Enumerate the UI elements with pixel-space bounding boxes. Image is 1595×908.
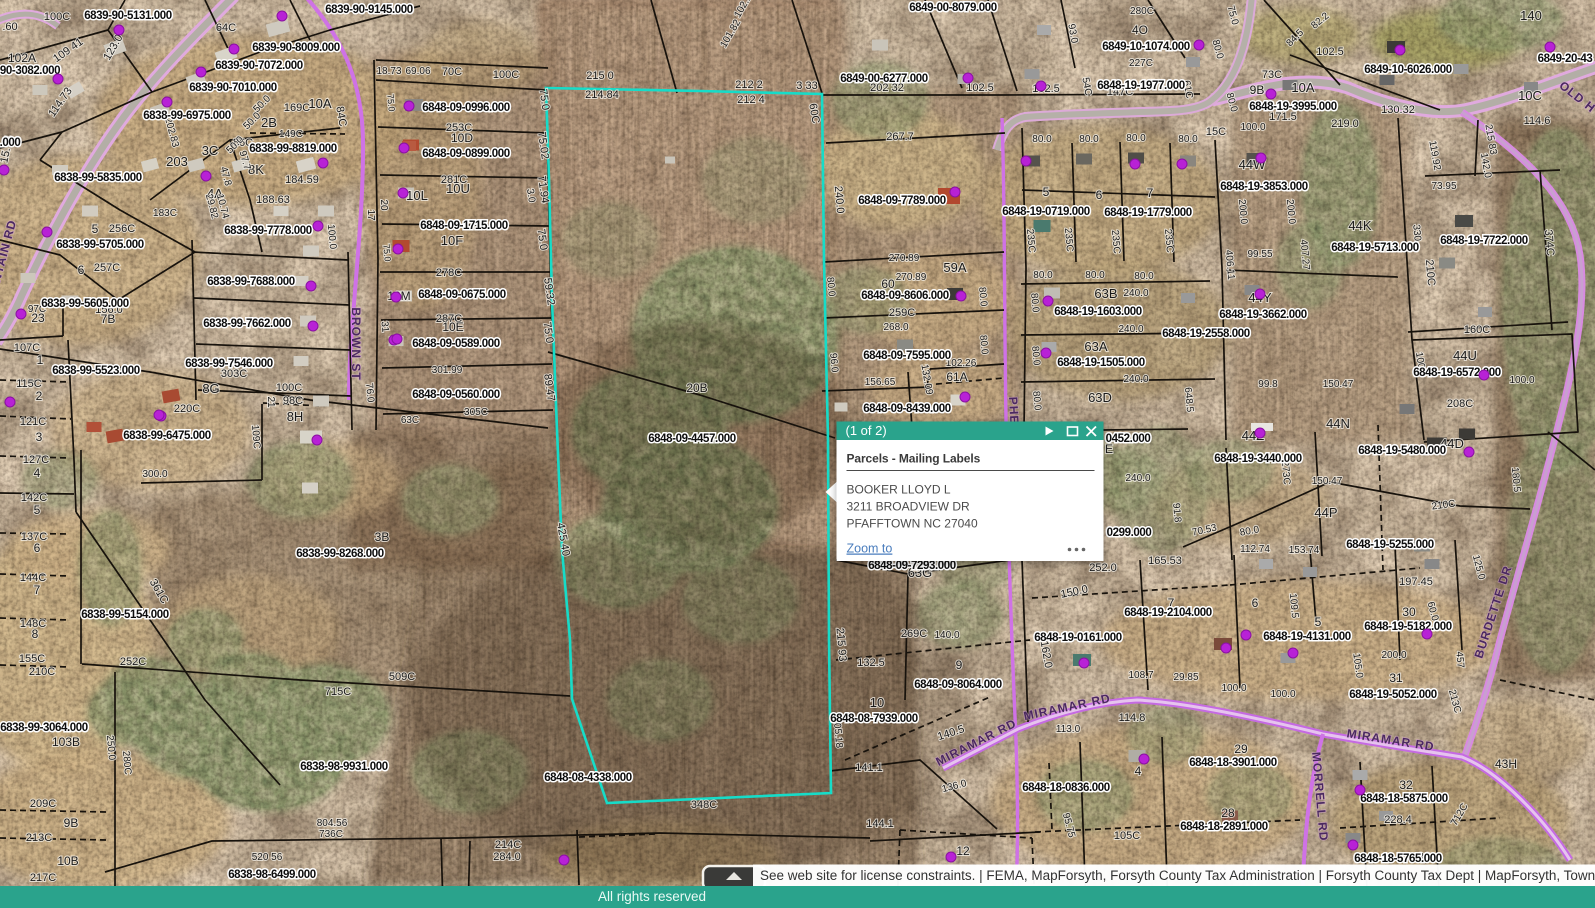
svg-text:214C: 214C xyxy=(495,839,521,851)
svg-text:6839-90-8009.000: 6839-90-8009.000 xyxy=(252,42,340,54)
svg-text:.60: .60 xyxy=(2,21,17,33)
svg-text:330: 330 xyxy=(1410,224,1422,242)
svg-text:73.95: 73.95 xyxy=(1431,181,1456,192)
svg-text:6849-20-43: 6849-20-43 xyxy=(1538,53,1593,65)
svg-text:Parcels - Mailing Labels: Parcels - Mailing Labels xyxy=(847,452,981,466)
svg-text:3 33: 3 33 xyxy=(796,80,817,92)
svg-text:3211 BROADVIEW DR: 3211 BROADVIEW DR xyxy=(847,500,970,514)
svg-text:6849-10-6026.000: 6849-10-6026.000 xyxy=(1364,64,1452,76)
svg-text:32: 32 xyxy=(1399,778,1413,792)
svg-text:0452.000: 0452.000 xyxy=(1106,433,1151,445)
svg-text:44U: 44U xyxy=(1453,348,1477,363)
svg-text:144.1: 144.1 xyxy=(866,818,894,830)
svg-text:212 4: 212 4 xyxy=(737,94,765,106)
svg-text:6848-19-2558.000: 6848-19-2558.000 xyxy=(1162,328,1250,340)
svg-text:18.73: 18.73 xyxy=(376,66,401,77)
svg-text:2: 2 xyxy=(36,389,43,403)
svg-text:121C: 121C xyxy=(20,416,46,428)
svg-text:10L: 10L xyxy=(406,188,428,203)
svg-text:240.0: 240.0 xyxy=(1123,288,1148,299)
svg-text:10A: 10A xyxy=(1291,80,1314,95)
svg-text:12: 12 xyxy=(956,844,970,858)
svg-text:278C: 278C xyxy=(436,267,462,279)
svg-text:257C: 257C xyxy=(94,262,120,274)
svg-text:80.0: 80.0 xyxy=(1033,270,1053,281)
svg-text:8: 8 xyxy=(32,627,39,641)
svg-text:200.0: 200.0 xyxy=(1284,199,1297,225)
svg-text:6849-10-1074.000: 6849-10-1074.000 xyxy=(1102,41,1190,53)
svg-text:6849-00-8079.000: 6849-00-8079.000 xyxy=(909,2,997,14)
svg-text:240.0: 240.0 xyxy=(1125,473,1150,484)
svg-text:80.0: 80.0 xyxy=(1032,134,1052,145)
svg-text:301.99: 301.99 xyxy=(432,365,463,376)
svg-text:140: 140 xyxy=(1520,8,1542,23)
svg-text:80.0: 80.0 xyxy=(824,277,837,298)
svg-text:235C: 235C xyxy=(1062,227,1075,252)
svg-text:210C: 210C xyxy=(1423,259,1437,286)
svg-text:200.0: 200.0 xyxy=(1236,199,1249,225)
svg-text:PFAFFTOWN NC 27040: PFAFFTOWN NC 27040 xyxy=(847,517,978,531)
svg-text:6848-19-7722.000: 6848-19-7722.000 xyxy=(1440,235,1528,247)
svg-text:6: 6 xyxy=(78,263,85,277)
svg-text:253C: 253C xyxy=(446,122,472,134)
svg-text:80.0: 80.0 xyxy=(1079,134,1099,145)
svg-text:6848-19-5182.000: 6848-19-5182.000 xyxy=(1364,621,1452,633)
svg-text:15C: 15C xyxy=(1206,126,1226,138)
svg-text:80.0: 80.0 xyxy=(1085,270,1105,281)
svg-text:715C: 715C xyxy=(325,686,351,698)
svg-text:6838-99-5835.000: 6838-99-5835.000 xyxy=(54,172,142,184)
svg-text:100C: 100C xyxy=(493,69,519,81)
svg-text:197.45: 197.45 xyxy=(1399,576,1433,588)
svg-text:2B: 2B xyxy=(261,115,277,130)
svg-text:6838-99-8268.000: 6838-99-8268.000 xyxy=(296,548,384,560)
svg-text:6848-09-0996.000: 6848-09-0996.000 xyxy=(422,102,510,114)
svg-text:75.0: 75.0 xyxy=(381,244,392,262)
svg-text:219.0: 219.0 xyxy=(1331,118,1359,130)
svg-text:6838-99-7688.000: 6838-99-7688.000 xyxy=(207,276,295,288)
svg-text:220C: 220C xyxy=(174,403,200,415)
svg-text:28: 28 xyxy=(1221,806,1235,820)
svg-text:6838-98-9931.000: 6838-98-9931.000 xyxy=(300,761,388,773)
svg-text:5: 5 xyxy=(1315,615,1322,629)
svg-text:4: 4 xyxy=(34,466,41,480)
svg-text:210C: 210C xyxy=(29,666,55,678)
svg-text:6838-99-6475.000: 6838-99-6475.000 xyxy=(123,430,211,442)
svg-text:6848-19-4131.000: 6848-19-4131.000 xyxy=(1263,631,1351,643)
svg-text:6838-98-6499.000: 6838-98-6499.000 xyxy=(228,869,316,881)
svg-text:100C: 100C xyxy=(276,382,302,394)
svg-text:348C: 348C xyxy=(691,799,717,811)
svg-text:80.0: 80.0 xyxy=(1134,271,1154,282)
svg-text:6848-09-8439.000: 6848-09-8439.000 xyxy=(863,403,951,415)
svg-text:203: 203 xyxy=(166,154,188,169)
svg-text:6848-18-5875.000: 6848-18-5875.000 xyxy=(1360,793,1448,805)
svg-text:7: 7 xyxy=(34,583,41,597)
svg-text:63B: 63B xyxy=(1094,286,1117,301)
svg-text:98C: 98C xyxy=(283,395,303,407)
svg-text:6839-90-9145.000: 6839-90-9145.000 xyxy=(325,4,413,16)
svg-text:10E: 10E xyxy=(442,320,463,334)
svg-text:269C: 269C xyxy=(901,628,927,640)
svg-text:6848-19-5052.000: 6848-19-5052.000 xyxy=(1349,689,1437,701)
svg-text:BROWN ST: BROWN ST xyxy=(349,307,363,380)
svg-text:169C: 169C xyxy=(284,102,310,114)
svg-text:6848-19-1603.000: 6848-19-1603.000 xyxy=(1054,306,1142,318)
svg-text:3C: 3C xyxy=(202,143,219,158)
svg-text:59A: 59A xyxy=(943,260,966,275)
svg-text:20: 20 xyxy=(378,199,389,211)
svg-text:76.0: 76.0 xyxy=(363,383,376,404)
svg-text:10: 10 xyxy=(870,695,884,710)
svg-text:44K: 44K xyxy=(1348,218,1371,233)
svg-text:156.65: 156.65 xyxy=(865,377,896,388)
svg-text:6: 6 xyxy=(1096,188,1103,202)
svg-text:63C: 63C xyxy=(401,415,419,426)
svg-text:102.5: 102.5 xyxy=(1316,46,1344,58)
svg-text:60: 60 xyxy=(881,277,895,291)
svg-text:6848-09-7293.000: 6848-09-7293.000 xyxy=(868,560,956,572)
svg-text:100.0: 100.0 xyxy=(325,224,338,250)
svg-text:4O: 4O xyxy=(1132,23,1148,37)
svg-text:6848-09-7789.000: 6848-09-7789.000 xyxy=(858,195,946,207)
svg-text:305C: 305C xyxy=(464,407,488,418)
svg-text:457: 457 xyxy=(1453,651,1465,669)
svg-text:6848-19-3853.000: 6848-19-3853.000 xyxy=(1220,181,1308,193)
svg-text:6848-19-5480.000: 6848-19-5480.000 xyxy=(1358,445,1446,457)
svg-text:75.0: 75.0 xyxy=(385,94,396,112)
svg-text:6848-19-0719.000: 6848-19-0719.000 xyxy=(1002,206,1090,218)
svg-text:108.7: 108.7 xyxy=(1128,670,1153,681)
svg-text:268.0: 268.0 xyxy=(883,322,908,333)
svg-text:44P: 44P xyxy=(1314,505,1337,520)
svg-text:100.0: 100.0 xyxy=(1221,683,1246,694)
svg-text:100.0: 100.0 xyxy=(1240,122,1265,133)
svg-text:300.0: 300.0 xyxy=(142,469,167,480)
svg-text:235C: 235C xyxy=(1109,229,1122,254)
svg-text:91.8: 91.8 xyxy=(1170,503,1183,524)
svg-text:Zoom to: Zoom to xyxy=(847,542,893,556)
svg-text:80.0: 80.0 xyxy=(1029,346,1042,367)
svg-text:6838-99-7778.000: 6838-99-7778.000 xyxy=(224,225,312,237)
svg-text:6838-99-8819.000: 6838-99-8819.000 xyxy=(249,143,337,155)
svg-text:10B: 10B xyxy=(57,854,78,868)
svg-text:99.8: 99.8 xyxy=(1258,379,1278,390)
svg-text:9B: 9B xyxy=(1250,83,1265,97)
svg-text:235C: 235C xyxy=(1024,228,1037,253)
svg-text:109C: 109C xyxy=(249,424,262,449)
svg-text:4: 4 xyxy=(1135,764,1142,778)
svg-text:6839-90-7072.000: 6839-90-7072.000 xyxy=(215,60,303,72)
svg-text:6838-99-5705.000: 6838-99-5705.000 xyxy=(56,239,144,251)
svg-text:.000: .000 xyxy=(0,137,20,149)
svg-text:132.5: 132.5 xyxy=(857,657,885,669)
svg-text:6838-99-7546.000: 6838-99-7546.000 xyxy=(185,358,273,370)
svg-text:21: 21 xyxy=(265,396,276,408)
svg-text:149C: 149C xyxy=(279,129,303,140)
svg-text:217C: 217C xyxy=(30,872,56,884)
svg-text:280C: 280C xyxy=(1130,6,1154,17)
svg-text:17: 17 xyxy=(365,209,376,221)
svg-text:284.0: 284.0 xyxy=(493,851,521,863)
svg-text:80.0: 80.0 xyxy=(1178,134,1198,145)
svg-text:80.0: 80.0 xyxy=(977,335,990,356)
svg-text:184.59: 184.59 xyxy=(285,174,319,186)
svg-text:9B: 9B xyxy=(64,816,79,830)
svg-text:180.5: 180.5 xyxy=(1509,467,1522,493)
svg-text:10C: 10C xyxy=(1518,88,1542,103)
svg-text:6848-18-3901.000: 6848-18-3901.000 xyxy=(1189,757,1277,769)
svg-text:6848-09-8064.000: 6848-09-8064.000 xyxy=(914,679,1002,691)
svg-text:6: 6 xyxy=(1252,596,1259,610)
svg-text:6848-19-5713.000: 6848-19-5713.000 xyxy=(1331,242,1419,254)
svg-text:228.4: 228.4 xyxy=(1384,814,1412,826)
svg-text:188.63: 188.63 xyxy=(256,194,290,206)
svg-text:213C: 213C xyxy=(26,832,52,844)
svg-text:6848-19-2104.000: 6848-19-2104.000 xyxy=(1124,607,1212,619)
svg-text:214.84: 214.84 xyxy=(585,89,619,101)
svg-text:240.0: 240.0 xyxy=(832,186,846,214)
svg-text:102.5: 102.5 xyxy=(966,82,994,94)
svg-text:80.0: 80.0 xyxy=(1126,133,1146,144)
svg-text:6: 6 xyxy=(34,541,41,555)
svg-text:BOOKER LLOYD L: BOOKER LLOYD L xyxy=(847,483,951,497)
svg-text:648.5: 648.5 xyxy=(1182,387,1195,413)
svg-text:6848-19-3440.000: 6848-19-3440.000 xyxy=(1214,453,1302,465)
svg-text:252.0: 252.0 xyxy=(1089,562,1117,574)
svg-text:235C: 235C xyxy=(1162,228,1175,253)
svg-text:250.0: 250.0 xyxy=(104,735,117,761)
svg-text:9: 9 xyxy=(956,658,963,672)
svg-text:43H: 43H xyxy=(1495,757,1517,771)
svg-text:99.55: 99.55 xyxy=(1247,249,1272,260)
svg-text:209C: 209C xyxy=(30,798,56,810)
svg-text:6848-09-4457.000: 6848-09-4457.000 xyxy=(648,433,736,445)
svg-text:6848-18-0836.000: 6848-18-0836.000 xyxy=(1022,782,1110,794)
svg-text:8G: 8G xyxy=(202,381,219,396)
svg-text:200.0: 200.0 xyxy=(1381,650,1406,661)
svg-text:113.0: 113.0 xyxy=(1056,724,1081,735)
svg-text:212 2: 212 2 xyxy=(735,79,763,91)
svg-text:259C: 259C xyxy=(889,307,915,319)
svg-text:63D: 63D xyxy=(1088,390,1112,405)
svg-text:6848-19-1779.000: 6848-19-1779.000 xyxy=(1104,207,1192,219)
svg-text:6848-09-8606.000: 6848-09-8606.000 xyxy=(861,290,949,302)
svg-text:80.0: 80.0 xyxy=(1028,293,1041,314)
svg-text:31: 31 xyxy=(1389,671,1403,685)
svg-text:520 56: 520 56 xyxy=(252,852,283,863)
svg-text:6838-99-6975.000: 6838-99-6975.000 xyxy=(143,110,231,122)
svg-text:6848-09-7595.000: 6848-09-7595.000 xyxy=(863,350,951,362)
svg-text:6848-19-0161.000: 6848-19-0161.000 xyxy=(1034,632,1122,644)
svg-text:6839-90-5131.000: 6839-90-5131.000 xyxy=(84,10,172,22)
svg-text:3B: 3B xyxy=(375,530,390,544)
svg-text:63A: 63A xyxy=(1084,339,1107,354)
svg-text:1: 1 xyxy=(37,353,44,367)
svg-text:7: 7 xyxy=(1147,186,1154,200)
svg-text:6848-18-2891.000: 6848-18-2891.000 xyxy=(1180,821,1268,833)
svg-text:5: 5 xyxy=(1043,185,1050,199)
svg-text:5: 5 xyxy=(92,222,99,236)
svg-text:80.0: 80.0 xyxy=(976,287,989,308)
svg-text:10A: 10A xyxy=(308,96,331,111)
svg-text:6848-08-7939.000: 6848-08-7939.000 xyxy=(830,713,918,725)
svg-text:6848-19-1505.000: 6848-19-1505.000 xyxy=(1057,357,1145,369)
svg-text:96.0: 96.0 xyxy=(827,353,840,374)
svg-text:3.0: 3.0 xyxy=(524,188,537,204)
svg-text:155C: 155C xyxy=(19,653,45,665)
svg-text:6848-09-1715.000: 6848-09-1715.000 xyxy=(420,220,508,232)
svg-text:105C: 105C xyxy=(1114,830,1140,842)
svg-text:270.89: 270.89 xyxy=(896,272,927,283)
svg-text:6848-08-4338.000: 6848-08-4338.000 xyxy=(544,772,632,784)
svg-text:31: 31 xyxy=(379,321,391,333)
svg-text:73C: 73C xyxy=(1262,69,1282,81)
svg-text:256C: 256C xyxy=(109,223,135,235)
svg-text:280C: 280C xyxy=(120,750,133,775)
svg-text:153.74: 153.74 xyxy=(1289,545,1320,556)
svg-text:6838-99-5605.000: 6838-99-5605.000 xyxy=(41,298,129,310)
svg-text:109.5: 109.5 xyxy=(1287,593,1300,619)
svg-text:61A: 61A xyxy=(946,370,967,384)
svg-text:80.0: 80.0 xyxy=(1030,391,1043,412)
svg-text:6848-09-0560.000: 6848-09-0560.000 xyxy=(412,389,500,401)
svg-text:100C: 100C xyxy=(44,11,70,23)
svg-text:183C: 183C xyxy=(153,208,177,219)
svg-text:130.32: 130.32 xyxy=(1381,104,1415,116)
svg-text:64C: 64C xyxy=(216,22,236,34)
svg-text:44N: 44N xyxy=(1326,416,1350,431)
svg-text:(1 of 2): (1 of 2) xyxy=(846,423,887,438)
svg-text:141.1: 141.1 xyxy=(855,762,883,774)
svg-text:6838-99-3064.000: 6838-99-3064.000 xyxy=(0,722,88,734)
svg-text:69.06: 69.06 xyxy=(405,66,430,77)
svg-text:6848-09-0899.000: 6848-09-0899.000 xyxy=(422,148,510,160)
svg-text:0299.000: 0299.000 xyxy=(1107,527,1152,539)
svg-text:165.53: 165.53 xyxy=(1148,555,1182,567)
svg-text:All rights reserved: All rights reserved xyxy=(598,889,706,904)
svg-text:215 0: 215 0 xyxy=(586,70,614,82)
svg-text:240.0: 240.0 xyxy=(1123,374,1148,385)
svg-text:804.56: 804.56 xyxy=(317,818,348,829)
svg-text:509C: 509C xyxy=(389,671,415,683)
svg-text:208C: 208C xyxy=(1447,398,1473,410)
svg-text:240.0: 240.0 xyxy=(1118,324,1143,335)
svg-text:70C: 70C xyxy=(442,66,462,78)
svg-text:10F: 10F xyxy=(441,233,463,248)
svg-text:20B: 20B xyxy=(686,381,707,395)
svg-text:90-3082.000: 90-3082.000 xyxy=(0,65,60,77)
svg-text:114.6: 114.6 xyxy=(1524,115,1551,127)
svg-text:8H: 8H xyxy=(287,409,304,424)
svg-text:160C: 160C xyxy=(1464,324,1490,336)
svg-text:6848-19-3662.000: 6848-19-3662.000 xyxy=(1219,309,1307,321)
svg-text:6848-19-1977.000: 6848-19-1977.000 xyxy=(1097,80,1185,92)
svg-text:6838-99-5523.000: 6838-99-5523.000 xyxy=(52,365,140,377)
svg-text:6838-99-7662.000: 6838-99-7662.000 xyxy=(203,318,291,330)
svg-text:150.47: 150.47 xyxy=(1312,476,1343,487)
svg-text:29.85: 29.85 xyxy=(1173,672,1198,683)
svg-text:127C: 127C xyxy=(23,454,49,466)
svg-text:100.0: 100.0 xyxy=(1270,689,1295,700)
svg-text:270.89: 270.89 xyxy=(889,253,920,264)
svg-text:See web site for license const: See web site for license constraints. | … xyxy=(760,868,1595,883)
svg-text:6849-00-6277.000: 6849-00-6277.000 xyxy=(840,73,928,85)
svg-text:6848-09-0589.000: 6848-09-0589.000 xyxy=(412,338,500,350)
svg-text:6838-99-5154.000: 6838-99-5154.000 xyxy=(81,609,169,621)
svg-text:112.74: 112.74 xyxy=(1240,544,1270,555)
svg-text:267.7: 267.7 xyxy=(886,131,914,143)
svg-text:140.0: 140.0 xyxy=(934,630,959,641)
svg-text:5: 5 xyxy=(34,503,41,517)
svg-text:6848-19-5255.000: 6848-19-5255.000 xyxy=(1346,539,1434,551)
svg-text:227C: 227C xyxy=(1129,58,1153,69)
svg-text:736C: 736C xyxy=(319,829,343,840)
svg-text:114.8: 114.8 xyxy=(1119,712,1146,724)
svg-text:6848-09-0675.000: 6848-09-0675.000 xyxy=(418,289,506,301)
svg-text:6848-18-5765.000: 6848-18-5765.000 xyxy=(1354,853,1442,865)
svg-text:252C: 252C xyxy=(120,656,146,668)
svg-text:6848-19-3995.000: 6848-19-3995.000 xyxy=(1249,101,1337,113)
svg-text:29: 29 xyxy=(1234,742,1248,756)
svg-text:100.0: 100.0 xyxy=(1509,375,1534,386)
svg-text:281C: 281C xyxy=(441,174,467,186)
svg-text:6839-90-7010.000: 6839-90-7010.000 xyxy=(189,82,277,94)
svg-text:103B: 103B xyxy=(52,735,80,749)
svg-text:3: 3 xyxy=(36,430,43,444)
svg-text:102A: 102A xyxy=(8,51,36,65)
svg-text:30: 30 xyxy=(1402,605,1416,619)
svg-text:374C: 374C xyxy=(1542,229,1556,256)
svg-text:150.47: 150.47 xyxy=(1323,379,1354,390)
